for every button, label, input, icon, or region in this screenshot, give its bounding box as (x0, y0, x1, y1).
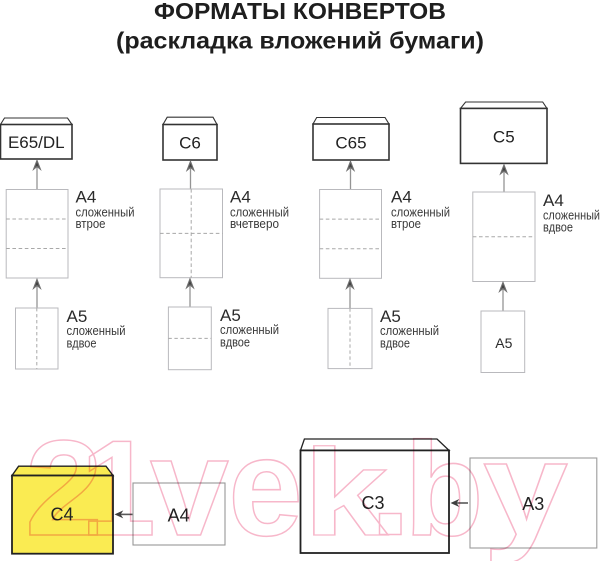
svg-text:1: 1 (80, 412, 156, 561)
svg-text:вдвое: вдвое (220, 336, 250, 350)
svg-text:ФОРМАТЫ КОНВЕРТОВ: ФОРМАТЫ КОНВЕРТОВ (154, 0, 446, 24)
svg-text:A5: A5 (495, 335, 512, 351)
svg-text:втрое: втрое (391, 217, 421, 231)
svg-text:e: e (228, 409, 302, 561)
svg-text:вдвое: вдвое (543, 221, 573, 235)
svg-text:A4: A4 (543, 191, 564, 210)
svg-text:A4: A4 (230, 188, 251, 207)
svg-text:v: v (150, 409, 229, 561)
svg-text:C6: C6 (179, 134, 201, 153)
svg-text:вчетверо: вчетверо (230, 217, 279, 231)
svg-text:вдвое: вдвое (380, 337, 410, 351)
svg-text:C65: C65 (335, 134, 366, 153)
svg-text:вдвое: вдвое (67, 337, 97, 351)
svg-text:y: y (483, 414, 568, 561)
svg-text:(раскладка вложений бумаги): (раскладка вложений бумаги) (116, 28, 484, 54)
svg-text:E65/DL: E65/DL (8, 133, 65, 152)
svg-text:A4: A4 (391, 188, 412, 207)
svg-text:A4: A4 (76, 188, 97, 207)
svg-text:b: b (405, 414, 484, 561)
svg-text:C5: C5 (493, 128, 515, 147)
svg-text:втрое: втрое (76, 217, 106, 231)
svg-text:k: k (303, 425, 389, 561)
